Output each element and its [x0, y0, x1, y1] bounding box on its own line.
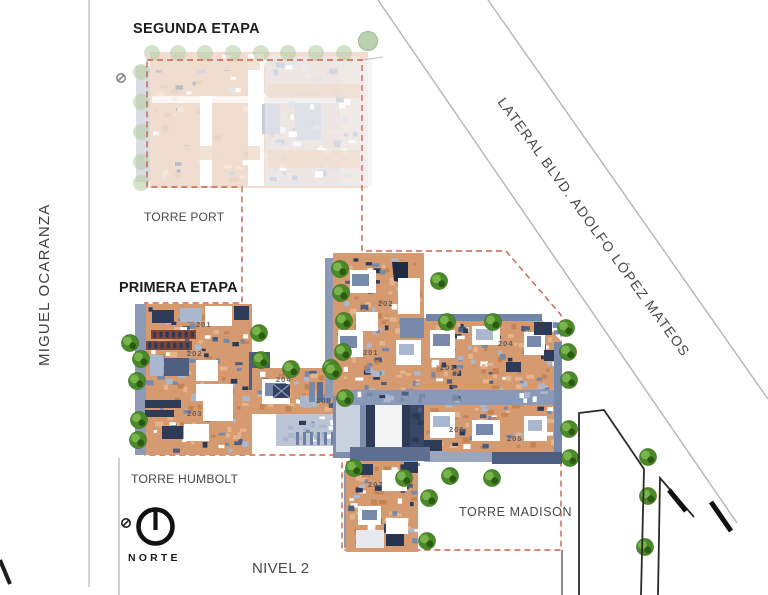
svg-text:203: 203: [440, 363, 456, 372]
svg-text:203: 203: [187, 409, 203, 418]
svg-text:204: 204: [498, 339, 514, 348]
svg-text:202: 202: [187, 349, 203, 358]
svg-text:201: 201: [196, 320, 212, 329]
svg-text:PRIMERA ETAPA: PRIMERA ETAPA: [119, 280, 238, 296]
svg-text:201: 201: [363, 348, 379, 357]
svg-text:TORRE PORT: TORRE PORT: [144, 210, 225, 224]
svg-text:NIVEL 2: NIVEL 2: [252, 560, 309, 577]
svg-text:MIGUEL OCARANZA: MIGUEL OCARANZA: [36, 204, 53, 366]
svg-text:202: 202: [378, 299, 394, 308]
svg-text:SEGUNDA ETAPA: SEGUNDA ETAPA: [133, 21, 260, 37]
svg-text:206: 206: [449, 425, 465, 434]
svg-text:NORTE: NORTE: [128, 552, 181, 564]
svg-text:207: 207: [368, 480, 384, 489]
svg-text:TORRE MADISON: TORRE MADISON: [459, 505, 572, 519]
svg-text:TORRE HUMBOLT: TORRE HUMBOLT: [131, 472, 238, 486]
svg-text:205: 205: [507, 434, 523, 443]
